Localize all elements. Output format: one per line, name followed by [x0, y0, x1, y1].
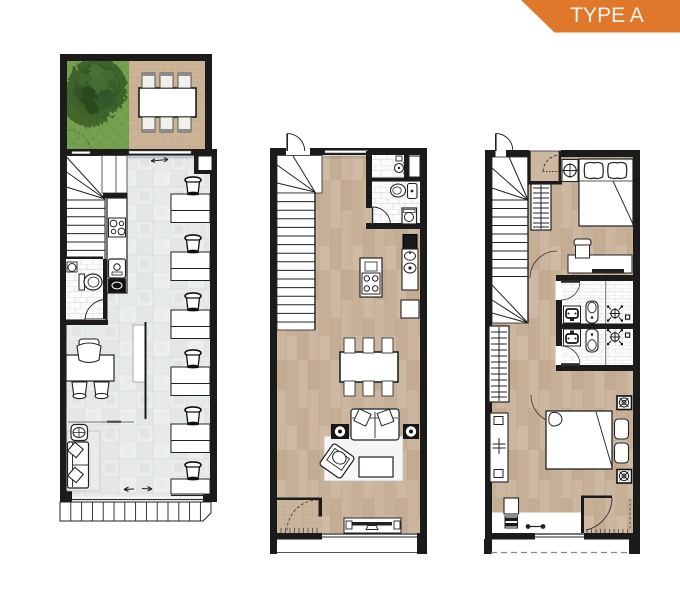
svg-text:TYPE A: TYPE A — [570, 4, 644, 27]
